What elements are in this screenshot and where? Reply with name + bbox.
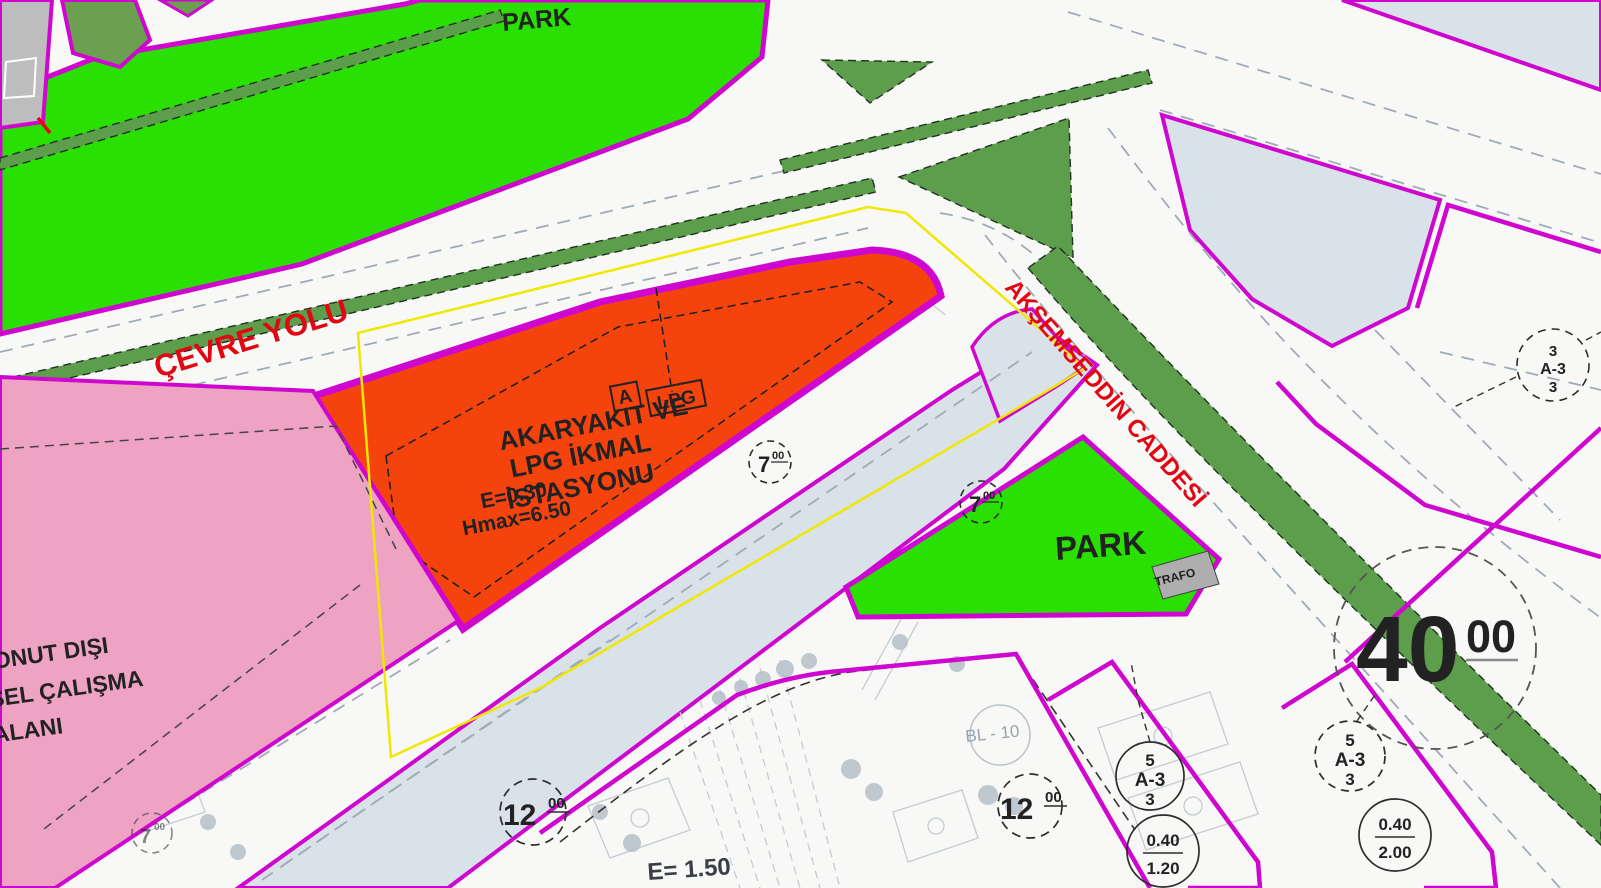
a3-bot: 3 bbox=[1549, 379, 1557, 396]
a3-top: 5 bbox=[1145, 751, 1154, 770]
parcel-gray-topleft bbox=[0, 0, 52, 128]
map-canvas: A LPG AKARYAKIT VE LPG İKMAL İSTASYONU E… bbox=[0, 0, 1601, 888]
width-7-value: 7 bbox=[758, 452, 770, 477]
width-12-sup: 00 bbox=[1045, 789, 1062, 806]
a3-top: 5 bbox=[1345, 731, 1354, 750]
ratio-num: 0.40 bbox=[1146, 831, 1179, 850]
width-12-value: 12 bbox=[503, 799, 536, 832]
ratio-num: 0.40 bbox=[1378, 815, 1411, 834]
width-7-value: 7 bbox=[969, 492, 981, 517]
a3-mid: A-3 bbox=[1540, 361, 1566, 378]
ratio-den: 2.00 bbox=[1378, 843, 1411, 862]
a3-bot: 3 bbox=[1145, 790, 1154, 809]
a3-top: 3 bbox=[1549, 343, 1557, 360]
park-top-label: PARK bbox=[501, 3, 572, 37]
width-12-sup: 00 bbox=[548, 795, 565, 812]
park-east-label: PARK bbox=[1054, 524, 1148, 567]
zoning-map: A LPG AKARYAKIT VE LPG İKMAL İSTASYONU E… bbox=[0, 0, 1601, 888]
width-12-value: 12 bbox=[1000, 793, 1033, 826]
a3-mid: A-3 bbox=[1335, 750, 1366, 771]
width-7-sup: 00 bbox=[772, 450, 784, 462]
width-40-sup: 00 bbox=[1466, 611, 1516, 662]
width-7-sup: 00 bbox=[154, 822, 166, 833]
width-7-sup: 00 bbox=[983, 490, 995, 502]
a3-mid: A-3 bbox=[1135, 770, 1166, 791]
width-40-value: 40 bbox=[1356, 597, 1459, 701]
a3-bot: 3 bbox=[1345, 770, 1354, 789]
width-7-value: 7 bbox=[140, 826, 151, 848]
ratio-den: 1.20 bbox=[1146, 859, 1179, 878]
